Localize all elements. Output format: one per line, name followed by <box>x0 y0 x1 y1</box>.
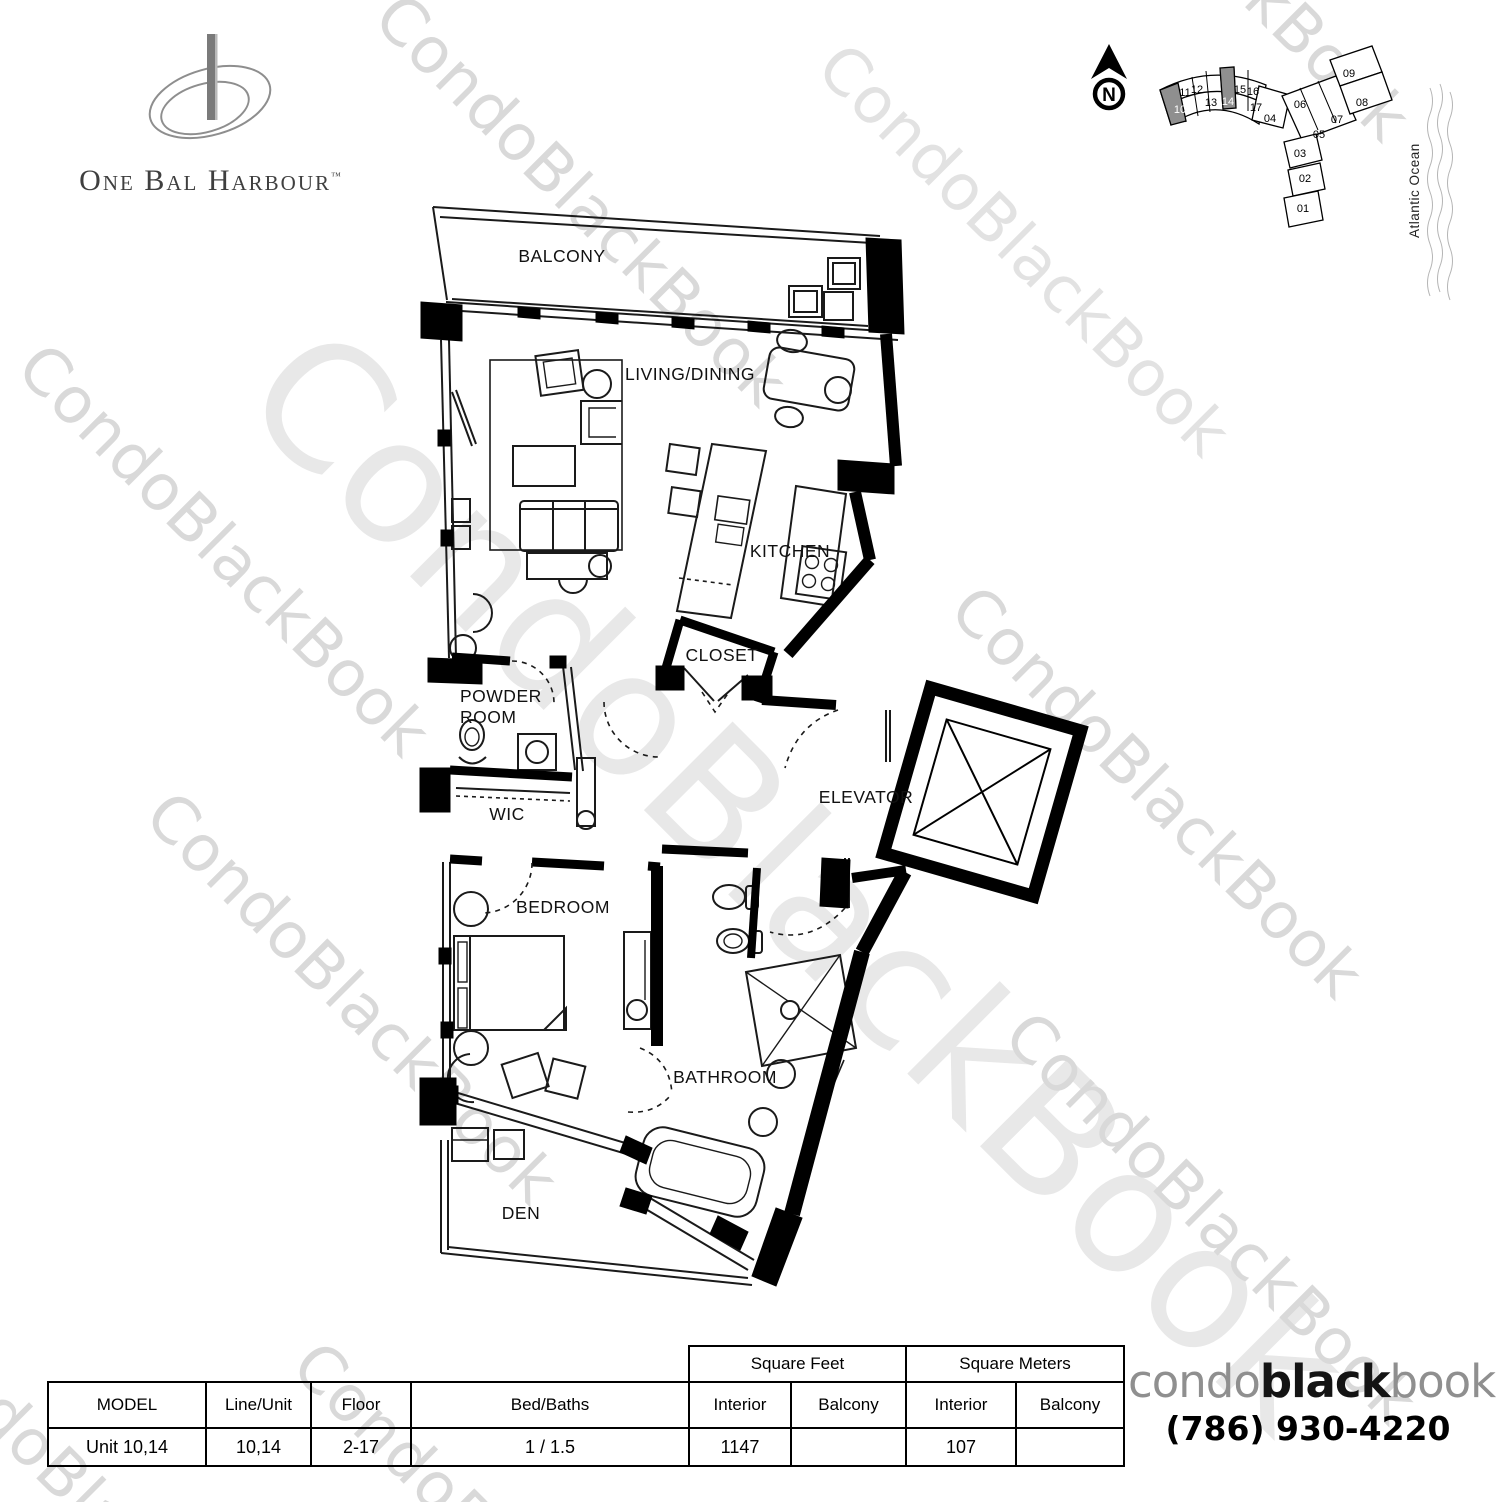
building-name: One Bal Harbour™ <box>40 164 380 198</box>
group-header-square-meters: Square Meters <box>906 1346 1124 1382</box>
floorplan-page: CondoBlackBook CondoBlackBook CondoBlack… <box>0 0 1504 1502</box>
atlantic-ocean: Atlantic Ocean <box>1407 84 1453 300</box>
room-label-balcony: BALCONY <box>518 246 605 266</box>
keyplan-unit-05: 05 <box>1313 129 1325 141</box>
room-label-wic: WIC <box>489 804 525 824</box>
room-label-closet: CLOSET <box>685 645 758 665</box>
keyplan-unit-09: 09 <box>1343 68 1355 80</box>
table-spacer <box>48 1346 689 1382</box>
cell-sm-interior: 107 <box>906 1428 1016 1466</box>
compass-north-label: N <box>1102 85 1116 106</box>
keyplan-unit-08: 08 <box>1356 97 1368 109</box>
trademark: ™ <box>331 171 341 182</box>
north-compass-icon: N <box>1091 44 1127 108</box>
col-header-sf-balcony: Balcony <box>791 1382 906 1428</box>
phone-number: (786) 930-4220 <box>1128 1409 1488 1448</box>
group-header-square-feet: Square Feet <box>689 1346 906 1382</box>
room-label-powder-room-line1: POWDER <box>460 686 542 706</box>
keyplan-unit-17: 17 <box>1250 102 1262 114</box>
cell-floor: 2-17 <box>311 1428 411 1466</box>
keyplan-unit-15: 15 <box>1234 84 1246 96</box>
wave-line-icon <box>1448 92 1453 300</box>
unit-spec-table: Square Feet Square Meters MODEL Line/Uni… <box>47 1345 1125 1467</box>
ocean-label: Atlantic Ocean <box>1407 143 1422 238</box>
room-label-den: DEN <box>502 1203 540 1223</box>
keyplan-unit-07: 07 <box>1331 114 1343 126</box>
keyplan-unit-03: 03 <box>1294 148 1306 160</box>
keyplan-unit-02: 02 <box>1299 173 1311 185</box>
brand-segment-book: book <box>1390 1355 1496 1408</box>
keyplan-unit-11: 11 <box>1179 87 1190 99</box>
brand-segment-black: black <box>1260 1355 1390 1408</box>
cell-model: Unit 10,14 <box>48 1428 206 1466</box>
building-logo: One Bal Harbour™ <box>40 30 380 198</box>
col-header-bed-baths: Bed/Baths <box>411 1382 689 1428</box>
table-row: Unit 10,14 10,14 2-17 1 / 1.5 1147 107 <box>48 1428 1124 1466</box>
unit-floorplan: BALCONY LIVING/DINING KITCHEN CLOSET POW… <box>420 207 1081 1286</box>
keyplan-unit-04: 04 <box>1264 113 1276 125</box>
keyplan-unit-01: 01 <box>1297 203 1309 215</box>
cell-sf-balcony <box>791 1428 906 1466</box>
cell-bed-baths: 1 / 1.5 <box>411 1428 689 1466</box>
col-header-sm-interior: Interior <box>906 1382 1016 1428</box>
cell-line-unit: 10,14 <box>206 1428 311 1466</box>
room-label-bathroom: BATHROOM <box>673 1067 777 1087</box>
floorplan-drawing: BALCONY LIVING/DINING KITCHEN CLOSET POW… <box>0 0 1504 1502</box>
wave-line-icon <box>1428 88 1433 296</box>
keyplan-unit-06: 06 <box>1294 99 1306 111</box>
footer-branding: condoblackbook (786) 930-4220 <box>1128 1358 1488 1448</box>
room-label-kitchen: KITCHEN <box>750 541 830 561</box>
cell-sm-balcony <box>1016 1428 1124 1466</box>
logo-swirl-icon <box>125 30 295 162</box>
building-keyplan: 10 11 12 13 14 15 16 17 04 06 09 08 07 0… <box>1160 46 1392 227</box>
wave-line-icon <box>1438 84 1443 292</box>
keyplan-unit-10: 10 <box>1174 104 1186 116</box>
room-label-powder-room-line2: ROOM <box>460 707 516 727</box>
col-header-floor: Floor <box>311 1382 411 1428</box>
col-header-model: MODEL <box>48 1382 206 1428</box>
keyplan-unit-16: 16 <box>1247 86 1259 98</box>
col-header-sm-balcony: Balcony <box>1016 1382 1124 1428</box>
room-label-living-dining: LIVING/DINING <box>625 364 755 384</box>
keyplan-unit-12: 12 <box>1191 84 1203 96</box>
room-label-elevator: ELEVATOR <box>819 787 913 807</box>
keyplan-unit-13: 13 <box>1205 97 1217 109</box>
condoblackbook-logo: condoblackbook <box>1128 1358 1488 1405</box>
col-header-line-unit: Line/Unit <box>206 1382 311 1428</box>
brand-segment-condo: condo <box>1128 1355 1260 1408</box>
keyplan-unit-14: 14 <box>1222 96 1234 108</box>
cell-sf-interior: 1147 <box>689 1428 791 1466</box>
col-header-sf-interior: Interior <box>689 1382 791 1428</box>
room-label-bedroom: BEDROOM <box>516 897 610 917</box>
